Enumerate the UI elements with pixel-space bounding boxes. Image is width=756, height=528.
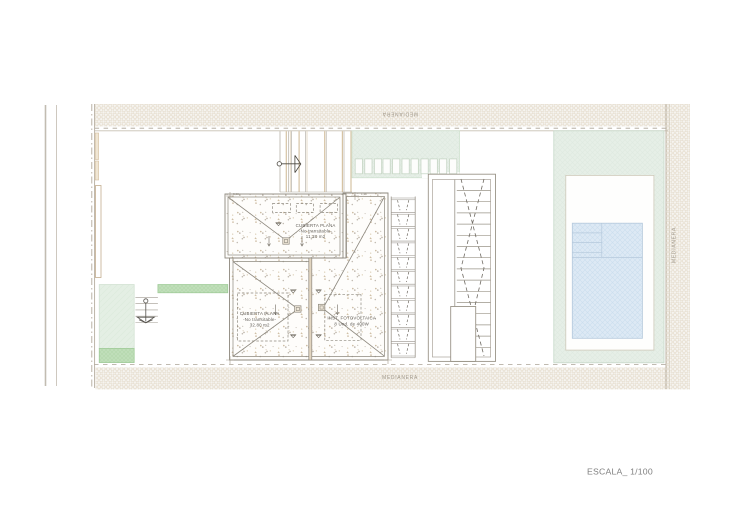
svg-text:-No transitable-: -No transitable- [299,228,333,233]
svg-text:INST. FOTOVOLTAICA: INST. FOTOVOLTAICA [327,316,376,321]
svg-text:-No transitable-: -No transitable- [243,317,277,322]
svg-text:CUBIERTA PLANA: CUBIERTA PLANA [296,223,336,228]
svg-text:11.30 m2: 11.30 m2 [306,234,326,239]
svg-text:ESCALA_ 1/100: ESCALA_ 1/100 [587,467,653,477]
svg-text:MEDIANERA: MEDIANERA [382,375,418,381]
svg-text:3,60: 3,60 [233,192,239,196]
svg-text:32.80 m2: 32.80 m2 [250,323,270,328]
svg-text:CUBIERTA PLANA: CUBIERTA PLANA [240,311,280,316]
svg-text:8 Und. de 400W: 8 Und. de 400W [334,321,369,326]
svg-text:MEDIANERA: MEDIANERA [382,111,418,117]
svg-text:MEDIANERA: MEDIANERA [672,227,678,263]
svg-text:1,45: 1,45 [361,192,367,196]
